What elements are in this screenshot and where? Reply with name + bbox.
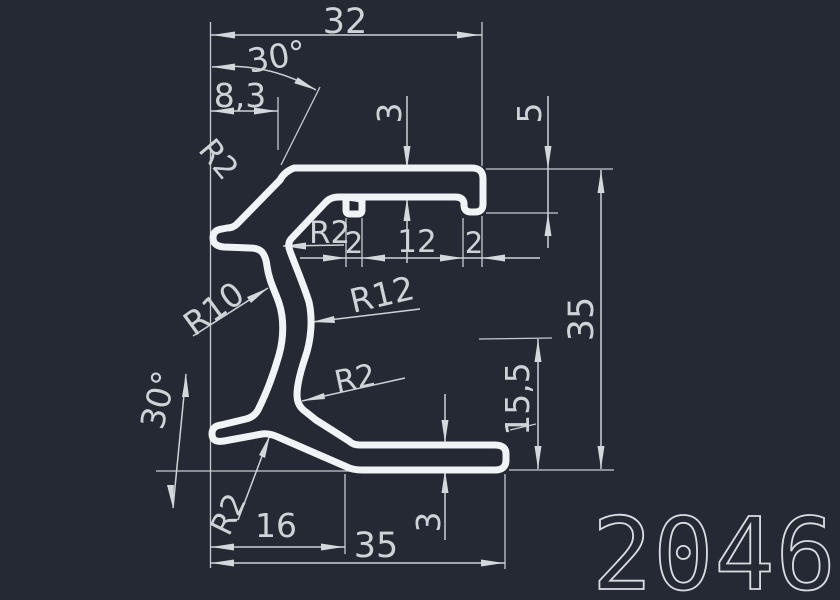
dimension-texts: 32 30° 8,3 3 5 R2 R2 2 12 2 R12 R10 R2 1… bbox=[133, 2, 602, 566]
angle-leg-line bbox=[281, 87, 320, 165]
label-fillet-top-left: R2 bbox=[191, 132, 245, 187]
cad-drawing: 32 30° 8,3 3 5 R2 R2 2 12 2 R12 R10 R2 1… bbox=[0, 0, 840, 600]
dim-groove-left: 2 bbox=[345, 226, 363, 260]
dim-height-inner: 15,5 bbox=[498, 362, 537, 435]
dim-lip-width: 2 bbox=[465, 226, 483, 260]
dim-angle-top: 30° bbox=[245, 32, 309, 81]
cad-viewport: 32 30° 8,3 3 5 R2 R2 2 12 2 R12 R10 R2 1… bbox=[0, 0, 840, 600]
label-fillet-mid: R2 bbox=[331, 357, 379, 401]
dim-height-overall: 35 bbox=[562, 297, 602, 342]
dim-width-top: 32 bbox=[323, 2, 368, 42]
label-radius-inner-wall: R12 bbox=[346, 268, 418, 321]
dim-thickness-bottom: 3 bbox=[409, 512, 448, 533]
dim-angle-bottom: 30° bbox=[133, 367, 185, 433]
dim-offset-bottom: 16 bbox=[255, 506, 297, 545]
dim-width-bottom: 35 bbox=[354, 526, 399, 566]
dim-lip-depth: 5 bbox=[510, 103, 549, 124]
dim-thickness-top: 3 bbox=[370, 103, 409, 124]
dim-offset-top: 8,3 bbox=[214, 76, 266, 115]
dim-groove-span: 12 bbox=[397, 224, 436, 260]
label-radius-outer-wall: R10 bbox=[176, 274, 251, 344]
drawing-number: 2046 bbox=[592, 496, 837, 600]
